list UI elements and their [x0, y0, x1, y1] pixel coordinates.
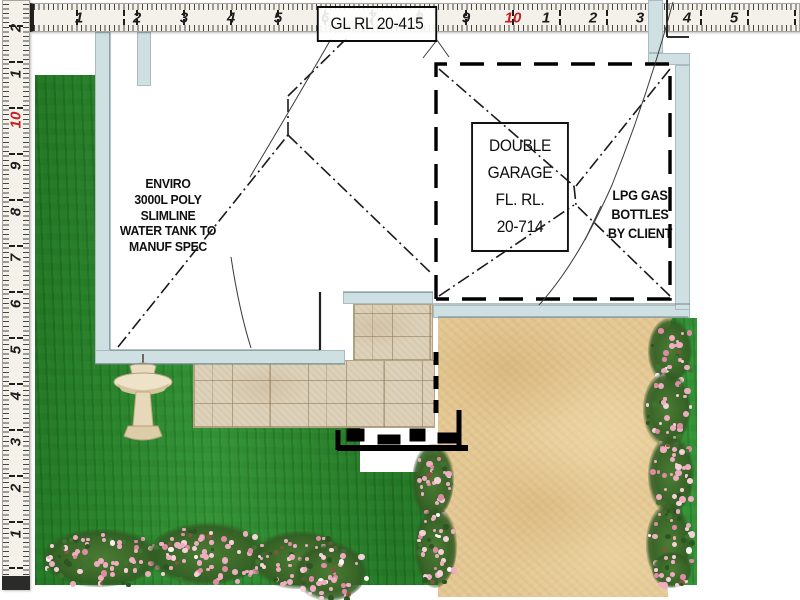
- water-tank-note-line: MANUF SPEC: [102, 239, 234, 255]
- flower-dot: [138, 549, 142, 553]
- flower-dot: [438, 549, 444, 555]
- garage-wall-top-jog: [648, 53, 690, 65]
- garage-wall-over-ruler: [648, 0, 663, 53]
- flower-dot: [672, 453, 676, 457]
- flower-dot: [670, 572, 675, 577]
- flower-dot: [686, 547, 692, 553]
- flower-dot: [141, 538, 144, 541]
- ground-level-label: GL RL 20-415: [317, 6, 437, 42]
- flower-dot: [262, 565, 266, 569]
- flower-bed: [148, 523, 266, 585]
- flower-dot: [274, 550, 278, 554]
- flower-dot: [288, 542, 292, 546]
- flower-dot: [159, 542, 163, 546]
- flower-dot: [47, 568, 50, 571]
- flower-dot: [249, 570, 253, 574]
- flower-dot: [689, 531, 695, 537]
- flower-dot: [70, 581, 76, 587]
- flower-dot: [681, 332, 684, 335]
- flower-dot: [194, 555, 198, 559]
- water-tank-note-line: SLIMLINE: [102, 208, 234, 224]
- flower-dot: [433, 547, 438, 552]
- flower-dot: [652, 534, 658, 540]
- flower-dot: [327, 557, 332, 562]
- flower-dot: [358, 554, 364, 560]
- garage-label: DOUBLE GARAGE FL. RL. 20-714: [471, 122, 569, 252]
- flower-dot: [679, 449, 685, 455]
- flower-dot: [66, 561, 71, 566]
- garage-label-line: DOUBLE: [489, 133, 551, 160]
- flower-dot: [658, 328, 664, 334]
- ruler-number: 5: [8, 346, 25, 354]
- flower-dot: [448, 487, 451, 490]
- water-tank-note: ENVIRO 3000L POLY SLIMLINE WATER TANK TO…: [102, 176, 234, 260]
- ruler-number: 10: [8, 112, 25, 129]
- flower-dot: [163, 564, 169, 570]
- flower-dot: [300, 586, 306, 592]
- flower-dot: [154, 545, 159, 550]
- flower-dot: [666, 577, 671, 582]
- flower-dot: [308, 592, 312, 596]
- ruler-number: 2: [8, 484, 25, 492]
- flower-dot: [660, 447, 666, 453]
- flower-dot: [269, 552, 272, 555]
- flower-dot: [445, 471, 451, 477]
- flower-dot: [171, 555, 176, 560]
- water-tank-note-line: 3000L POLY: [102, 192, 234, 208]
- flower-dot: [673, 475, 679, 481]
- flower-dot: [677, 350, 681, 354]
- flower-dot: [220, 550, 225, 555]
- garage-wall-bottom: [433, 305, 690, 318]
- flower-dot: [646, 421, 651, 426]
- flower-dot: [426, 556, 429, 559]
- flower-dot: [662, 357, 667, 362]
- flower-dot: [198, 537, 203, 542]
- flower-bed: [652, 552, 692, 588]
- flower-dot: [110, 540, 115, 545]
- flower-dot: [328, 595, 334, 600]
- flower-dot: [77, 569, 82, 574]
- flower-dot: [651, 344, 654, 347]
- flower-dot: [145, 571, 151, 577]
- flower-dot: [667, 365, 672, 370]
- flower-dot: [664, 556, 669, 561]
- flower-dot: [418, 458, 421, 461]
- flower-dot: [355, 562, 358, 565]
- flower-dot: [436, 513, 440, 517]
- flower-dot: [252, 534, 258, 540]
- flower-dot: [283, 581, 287, 585]
- ruler-number: 7: [8, 254, 25, 262]
- flower-dot: [209, 540, 213, 544]
- ruler-number: 4: [227, 9, 235, 26]
- flower-dot: [182, 548, 187, 553]
- flower-dot: [73, 555, 77, 559]
- ruler-number: 3: [180, 9, 188, 26]
- ruler-number: 2: [133, 9, 141, 26]
- flower-dot: [665, 534, 670, 539]
- flower-dot: [676, 342, 682, 348]
- flower-dot: [687, 478, 693, 484]
- flower-dot: [47, 556, 50, 559]
- flower-dot: [117, 544, 121, 548]
- paving-area-arm: [353, 304, 433, 361]
- flower-dot: [187, 581, 190, 584]
- flower-dot: [133, 568, 137, 572]
- flower-dot: [325, 536, 331, 542]
- flower-dot: [213, 579, 219, 585]
- flower-dot: [656, 500, 661, 505]
- flower-dot: [667, 510, 670, 513]
- ruler-number: 1: [8, 530, 25, 538]
- flower-dot: [672, 542, 677, 547]
- flower-dot: [315, 546, 318, 549]
- flower-dot: [122, 540, 126, 544]
- flower-dot: [175, 561, 179, 565]
- flower-dot: [266, 555, 269, 558]
- flower-dot: [664, 488, 667, 491]
- flower-dot: [670, 519, 674, 523]
- flower-dot: [293, 544, 297, 548]
- flower-dot: [434, 477, 440, 483]
- flower-dot: [443, 524, 449, 530]
- flower-dot: [170, 537, 174, 541]
- flower-dot: [654, 522, 658, 526]
- lpg-note: LPG GAS BOTTLES BY CLIENT: [591, 186, 689, 246]
- flower-dot: [331, 567, 337, 573]
- flower-dot: [168, 542, 172, 546]
- flower-dot: [646, 403, 650, 407]
- flower-dot: [225, 544, 230, 549]
- flower-dot: [657, 470, 660, 473]
- flower-dot: [197, 560, 203, 566]
- ruler-number-ticks: [9, 1, 15, 589]
- flower-dot: [664, 415, 670, 421]
- flower-dot: [446, 482, 450, 486]
- flower-dot: [321, 563, 327, 569]
- flower-dot: [665, 565, 670, 570]
- flower-dot: [209, 565, 214, 570]
- flower-dot: [273, 577, 278, 582]
- flower-dot: [103, 562, 109, 568]
- flower-dot: [276, 567, 281, 572]
- flower-dot: [662, 473, 668, 479]
- paving-area: [193, 360, 435, 428]
- flower-dot: [419, 530, 425, 536]
- ruler-number: 3: [8, 438, 25, 446]
- sand-path-area: [438, 318, 672, 597]
- flower-dot: [209, 531, 213, 535]
- flower-dot: [309, 576, 315, 582]
- ruler-number: 4: [8, 392, 25, 400]
- flower-dot: [232, 569, 238, 575]
- flower-dot: [443, 536, 449, 542]
- flower-dot: [652, 402, 657, 407]
- flower-dot: [73, 535, 78, 540]
- flower-dot: [675, 463, 678, 466]
- flower-dot: [290, 574, 294, 578]
- flower-dot: [672, 447, 677, 452]
- flower-dot: [260, 544, 263, 547]
- flower-dot: [658, 383, 664, 389]
- flower-dot: [305, 544, 308, 547]
- flower-dot: [58, 573, 64, 579]
- flower-dot: [423, 467, 428, 472]
- flower-dot: [110, 566, 114, 570]
- ruler-number: 5: [730, 9, 738, 26]
- flower-dot: [339, 559, 344, 564]
- flower-dot: [655, 429, 660, 434]
- flower-dot: [82, 549, 88, 555]
- flower-dot: [656, 364, 662, 370]
- flower-dot: [671, 560, 675, 564]
- flower-dot: [180, 543, 185, 548]
- flower-dot: [243, 531, 248, 536]
- flower-dot: [430, 580, 434, 584]
- flower-dot: [87, 558, 92, 563]
- flower-dot: [218, 574, 223, 579]
- flower-dot: [340, 553, 346, 559]
- flower-dot: [303, 567, 307, 571]
- flower-dot: [688, 496, 694, 502]
- flower-dot: [681, 360, 684, 363]
- flower-dot: [683, 395, 687, 399]
- flower-dot: [669, 343, 675, 349]
- ruler-number: 2: [589, 9, 597, 26]
- house-wall-stub: [137, 32, 151, 86]
- ruler-number: 1: [75, 9, 83, 26]
- ruler-number: 1: [542, 9, 550, 26]
- flower-dot: [427, 538, 431, 542]
- flower-dot: [433, 529, 437, 533]
- flower-dot: [430, 465, 434, 469]
- flower-dot: [434, 567, 437, 570]
- flower-dot: [289, 554, 295, 560]
- flower-dot: [242, 571, 246, 575]
- flower-dot: [100, 582, 103, 585]
- flower-dot: [255, 566, 258, 569]
- flower-dot: [422, 547, 427, 552]
- flower-dot: [656, 494, 662, 500]
- flower-dot: [659, 422, 662, 425]
- flower-dot: [310, 585, 316, 591]
- flower-dot: [134, 540, 137, 543]
- water-tank-note-line: WATER TANK TO: [102, 223, 234, 239]
- flower-dot: [182, 559, 186, 563]
- flower-dot: [114, 561, 119, 566]
- ruler-number: 10: [505, 9, 522, 26]
- flower-dot: [421, 492, 424, 495]
- flower-dot: [101, 533, 105, 537]
- flower-dot: [672, 525, 677, 530]
- lpg-note-line: BOTTLES: [591, 205, 689, 224]
- flower-dot: [438, 494, 444, 500]
- flower-dot: [682, 466, 686, 470]
- flower-dot: [666, 431, 669, 434]
- flower-dot: [319, 596, 324, 600]
- flower-dot: [676, 509, 680, 513]
- flower-dot: [82, 566, 87, 571]
- flower-dot: [654, 568, 658, 572]
- flower-dot: [426, 472, 432, 478]
- flower-dot: [179, 577, 183, 581]
- flower-dot: [421, 552, 425, 556]
- flower-dot: [101, 570, 107, 576]
- ruler-number: 6: [8, 300, 25, 308]
- garage-label-line: FL. RL.: [496, 187, 545, 214]
- bird-bath: [100, 352, 186, 444]
- flower-dot: [288, 564, 292, 568]
- flower-dot: [672, 555, 677, 560]
- flower-dot: [321, 580, 326, 585]
- ruler-number: 9: [8, 162, 25, 170]
- flower-dot: [663, 350, 669, 356]
- flower-dot: [168, 547, 174, 553]
- flower-dot: [203, 554, 209, 560]
- flower-dot: [437, 570, 443, 576]
- flower-dot: [685, 449, 688, 452]
- ruler-number: 9: [462, 9, 470, 26]
- ruler-number: 4: [683, 9, 691, 26]
- flower-dot: [685, 464, 691, 470]
- flower-dot: [287, 579, 293, 585]
- lpg-note-line: LPG GAS: [591, 186, 689, 205]
- flower-dot: [680, 583, 683, 586]
- flower-dot: [684, 388, 690, 394]
- flower-dot: [666, 444, 669, 447]
- flower-dot: [124, 568, 129, 573]
- flower-dot: [677, 516, 682, 521]
- flower-dot: [417, 539, 420, 542]
- flower-dot: [316, 536, 321, 541]
- flower-dot: [680, 488, 684, 492]
- flower-dot: [435, 554, 439, 558]
- ruler-number: 1: [8, 70, 25, 78]
- flower-dot: [442, 580, 447, 585]
- flower-dot: [175, 577, 179, 581]
- flower-dot: [221, 536, 227, 542]
- ruler-number: 8: [8, 208, 25, 216]
- flower-dot: [418, 543, 422, 547]
- flower-dot: [670, 457, 675, 462]
- flower-dot: [194, 572, 199, 577]
- left-ruler: 1234567891012: [2, 0, 30, 590]
- flower-dot: [61, 546, 65, 550]
- flower-dot: [123, 560, 128, 565]
- flower-dot: [679, 384, 682, 387]
- flower-dot: [672, 494, 677, 499]
- flower-dot: [102, 538, 106, 542]
- flower-dot: [181, 533, 184, 536]
- flower-dot: [673, 536, 676, 539]
- flower-dot: [222, 557, 228, 563]
- garage-label-line: 20-714: [497, 214, 544, 241]
- flower-dot: [188, 533, 192, 537]
- flower-dot: [424, 520, 427, 523]
- flower-dot: [650, 469, 656, 475]
- flower-dot: [346, 583, 351, 588]
- flower-dot: [329, 548, 333, 552]
- water-tank-note-line: ENVIRO: [102, 176, 234, 192]
- ruler-ticks: [23, 1, 29, 589]
- flower-dot: [431, 517, 435, 521]
- flower-dot: [668, 488, 672, 492]
- flower-dot: [451, 529, 455, 533]
- flower-dot: [654, 460, 657, 463]
- flower-dot: [677, 423, 682, 428]
- garage-label-line: GARAGE: [488, 160, 553, 187]
- house-wall-step: [343, 292, 433, 304]
- ruler-number: 5: [274, 9, 282, 26]
- flower-dot: [209, 553, 214, 558]
- flower-dot: [280, 546, 284, 550]
- flower-dot: [206, 568, 209, 571]
- flower-dot: [432, 470, 435, 473]
- flower-dot: [683, 411, 689, 417]
- flower-dot: [681, 538, 686, 543]
- flower-dot: [50, 544, 54, 548]
- flower-dot: [680, 574, 685, 579]
- flower-dot: [305, 557, 310, 562]
- flower-dot: [647, 415, 650, 418]
- ruler-number: 3: [636, 9, 644, 26]
- flower-dot: [222, 566, 228, 572]
- flower-dot: [62, 539, 67, 544]
- flower-dot: [182, 528, 185, 531]
- flower-dot: [440, 561, 445, 566]
- flower-dot: [54, 567, 59, 572]
- flower-dot: [169, 566, 173, 570]
- ruler-number: 2: [8, 24, 25, 32]
- flower-dot: [237, 550, 241, 554]
- flower-dot: [676, 394, 679, 397]
- flower-dot: [284, 539, 288, 543]
- flower-dot: [319, 591, 324, 596]
- flower-dot: [670, 425, 676, 431]
- flower-dot: [58, 555, 61, 558]
- flower-dot: [126, 583, 130, 587]
- flower-dot: [86, 538, 90, 542]
- flower-dot: [49, 561, 55, 567]
- flower-dot: [669, 335, 675, 341]
- flower-dot: [110, 572, 115, 577]
- flower-bed: [295, 543, 367, 600]
- flower-dot: [659, 573, 665, 579]
- flower-dot: [192, 546, 197, 551]
- flower-dot: [94, 561, 100, 567]
- ruler-number-ticks: [17, 1, 23, 589]
- ruler-end-cap: [2, 576, 30, 590]
- lpg-note-line: BY CLIENT: [591, 224, 689, 243]
- flower-dot: [139, 560, 143, 564]
- flower-dot: [344, 596, 350, 600]
- flower-dot: [192, 529, 197, 534]
- flower-dot: [427, 483, 431, 487]
- flower-dot: [161, 572, 165, 576]
- flower-dot: [420, 485, 423, 488]
- flower-dot: [422, 577, 428, 583]
- flower-dot: [658, 513, 662, 517]
- flower-dot: [675, 583, 679, 587]
- landscape-plan-canvas: GL RL 20-415 DOUBLE GARAGE FL. RL. 20-71…: [0, 0, 800, 600]
- flower-dot: [329, 587, 333, 591]
- flower-dot: [451, 567, 456, 572]
- flower-dot: [648, 534, 652, 538]
- flower-dot: [661, 400, 666, 405]
- flower-dot: [439, 529, 443, 533]
